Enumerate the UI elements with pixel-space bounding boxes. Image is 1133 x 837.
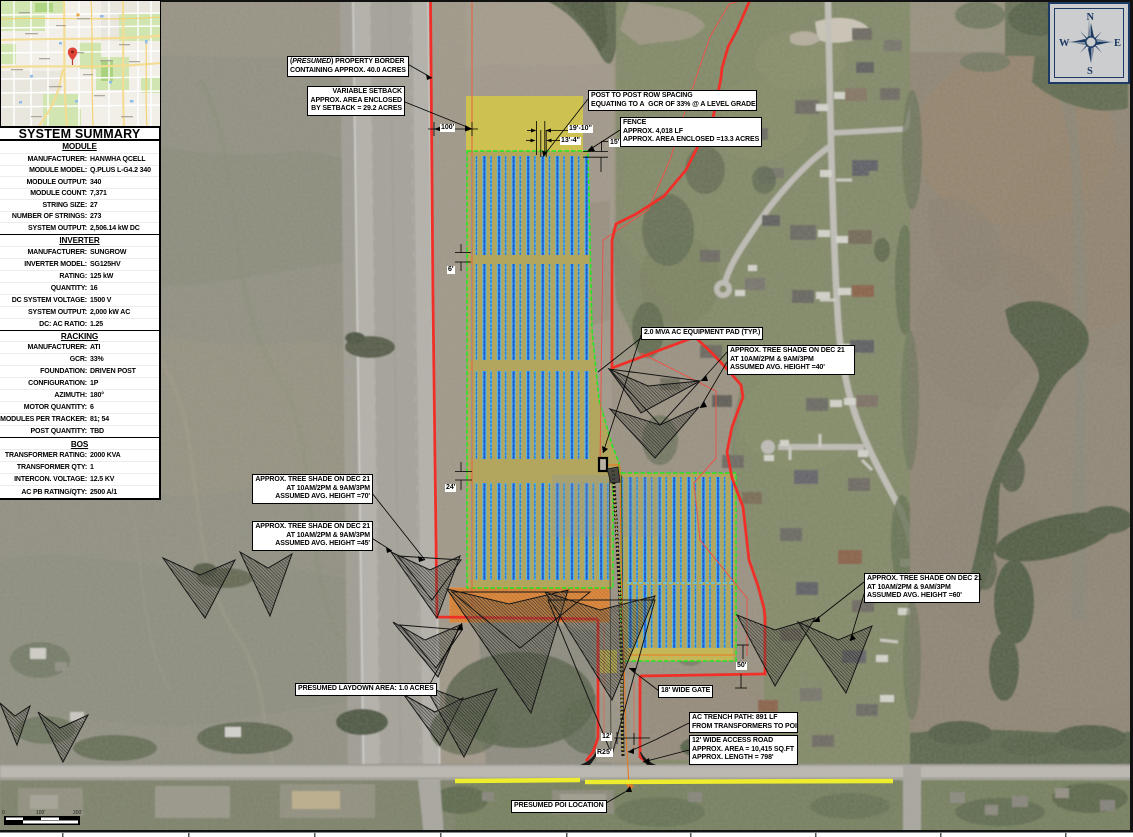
svg-text:100': 100' — [36, 810, 45, 816]
svg-text:0: 0 — [2, 810, 5, 816]
svg-text:W: W — [1059, 38, 1070, 49]
svg-text:N: N — [1087, 12, 1095, 23]
svg-text:S: S — [1087, 66, 1093, 77]
svg-text:E: E — [1114, 38, 1121, 49]
svg-text:200': 200' — [73, 810, 82, 816]
